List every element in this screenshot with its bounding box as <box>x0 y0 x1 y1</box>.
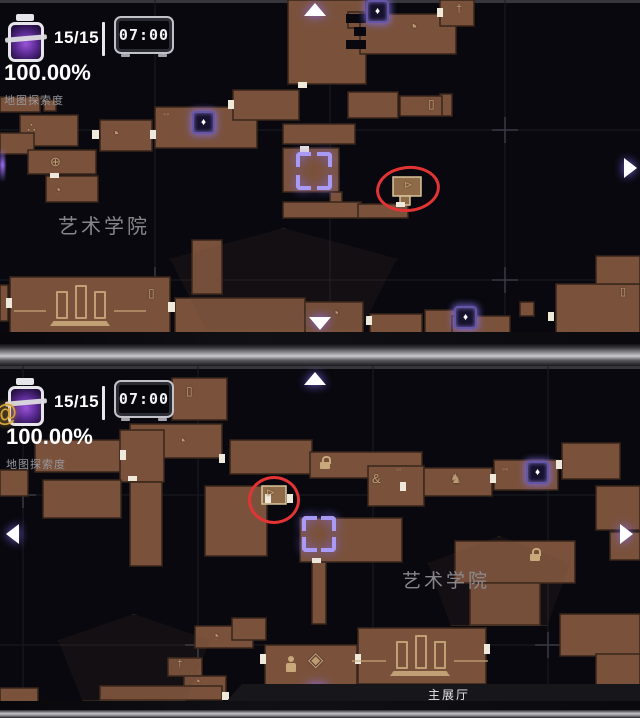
teleport-anchor-icon[interactable]: ♦ <box>192 111 215 134</box>
map-screenshot-pair: ∴ ◔ ◦◦ † ◔ ▯ ⊕ ◔ ◔ ▯ ▯ ⊳ ♦ ♦ ♦ 艺术学院 <box>0 0 640 718</box>
lock-icon <box>530 548 540 561</box>
map-exit-arrow-left[interactable] <box>6 524 19 544</box>
map-exit-arrow-up[interactable] <box>304 3 326 16</box>
map-exit-arrow-up[interactable] <box>304 372 326 385</box>
teleport-anchor-icon[interactable]: ♦ <box>526 461 549 484</box>
region-label: 艺术学院 <box>58 210 150 239</box>
bottom-metal-strip <box>0 710 640 718</box>
stamina-counter: 15/15 <box>54 28 99 48</box>
hud-divider <box>102 22 105 56</box>
position-bracket-marker <box>296 152 332 190</box>
map-exit-arrow-left-glow[interactable] <box>0 148 5 182</box>
map-exit-arrow-right[interactable] <box>624 158 637 178</box>
red-circle-annotation <box>248 476 300 524</box>
statue-icon <box>286 656 296 672</box>
screenshot-divider-bar <box>0 344 640 366</box>
position-bracket-marker <box>302 516 336 552</box>
map-exit-arrow-right[interactable] <box>620 524 633 544</box>
region-label: 艺术学院 <box>402 566 490 593</box>
bottom-hud-bar <box>0 332 640 344</box>
lock-icon <box>320 456 330 469</box>
exploration-percent: 100.00% <box>4 60 91 86</box>
exploration-label: 地图探索度 <box>6 456 66 472</box>
clock-time: 07:00 <box>119 26 169 44</box>
map-panel-top: ∴ ◔ ◦◦ † ◔ ▯ ⊕ ◔ ◔ ▯ ▯ ⊳ ♦ ♦ ♦ 艺术学院 <box>0 0 640 344</box>
teleport-anchor-icon[interactable]: ♦ <box>454 306 477 329</box>
exploration-percent: 100.00% <box>6 424 93 450</box>
clock-time: 07:00 <box>119 390 169 408</box>
game-clock: 07:00 <box>114 380 174 418</box>
stamina-counter: 15/15 <box>54 392 99 412</box>
map-exit-arrow-down[interactable] <box>309 317 331 330</box>
monument-icon <box>48 288 112 326</box>
monument-icon <box>388 636 452 676</box>
hud-divider <box>102 386 105 420</box>
teleport-anchor-icon[interactable]: ♦ <box>366 0 389 23</box>
exploration-label: 地图探索度 <box>4 92 64 108</box>
stamina-flask-icon <box>8 14 44 62</box>
map-panel-bottom: ▯ ◔ & ◦◦ ♞ ◦◦ ◔ † ◔ ⊳ ◈ ♦ 艺术学院 <box>0 366 640 718</box>
game-clock: 07:00 <box>114 16 174 54</box>
